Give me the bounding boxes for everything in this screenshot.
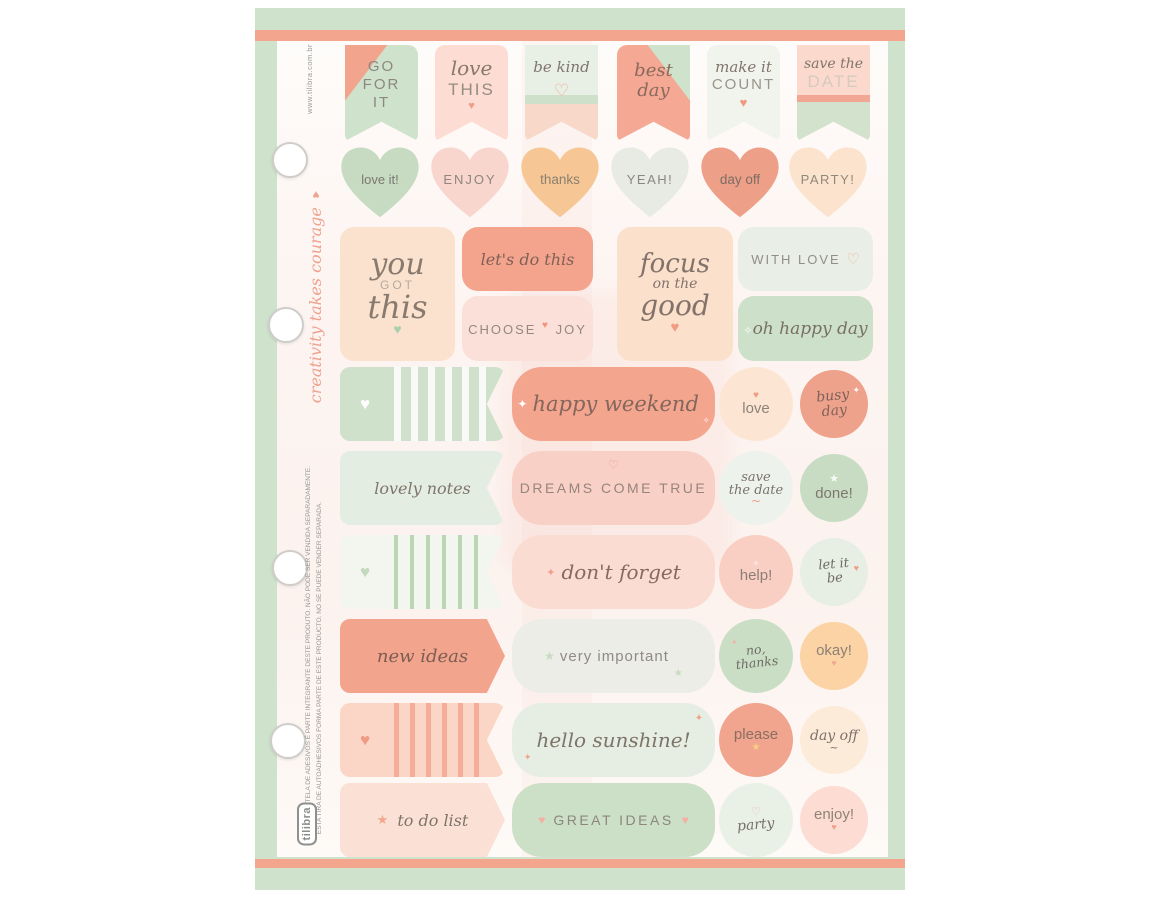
sticker-flag-make-it-count: make it COUNT ♥ <box>707 45 780 141</box>
stripe-pattern <box>394 367 489 441</box>
sticker-tag-striped-mint: ♥ <box>340 367 505 441</box>
sticker-circle-party: ♡ party <box>719 783 793 857</box>
vertical-legal-text: ESTA CARTELA DE ADESIVOS É PARTE INTEGRA… <box>303 466 325 818</box>
star-icon: ★ <box>544 649 555 663</box>
sticker-circle-busy-day: busy day ✦ <box>800 370 868 438</box>
sticker-circle-love: ♥ love <box>719 367 793 441</box>
sticker-circle-okay: okay! ♥ <box>800 622 868 690</box>
circle-label: enjoy! <box>814 807 854 823</box>
quote-script: focus <box>640 253 710 276</box>
punch-hole <box>272 142 308 178</box>
circle-label: party <box>737 817 776 835</box>
pill-label: hello sunshine! <box>536 728 690 752</box>
flag-divider-band <box>797 95 870 102</box>
heart-icon: ♥ <box>468 100 475 112</box>
sparkle-icon: ✦ <box>731 639 738 647</box>
sticker-heart-day-off: day off <box>698 145 782 221</box>
pill-label: don't forget <box>561 560 680 584</box>
flag-caps: THIS <box>448 80 495 100</box>
circle-label: day <box>818 402 852 420</box>
brand-logo-text: tilibra <box>297 802 317 845</box>
sticker-pill-very-important: ★ very important ★ <box>512 619 715 693</box>
flag-label: GOFORIT <box>363 58 401 112</box>
heart-label: PARTY! <box>786 172 870 187</box>
circle-label: done! <box>815 486 853 502</box>
swirl-icon: ~ <box>829 744 838 752</box>
heart-outline-icon: ♡ <box>846 251 859 268</box>
quote-script: let's do this <box>481 250 575 269</box>
sparkle-icon: ✦ <box>546 566 555 579</box>
heart-icon: ♥ <box>393 322 401 336</box>
sticker-circle-done: ★ done! <box>800 454 868 522</box>
heart-icon: ♥ <box>360 732 370 749</box>
top-coral-stripe <box>255 30 905 41</box>
quote-caps: CHOOSE <box>468 322 536 337</box>
sticker-circle-day-off: day off ~ <box>800 706 868 774</box>
sticker-quote-lets-do-this: let's do this <box>462 227 593 291</box>
flag-script: make it <box>715 58 772 76</box>
sticker-pill-dreams-come-true: ♡ DREAMS COME TRUE <box>512 451 715 525</box>
heart-icon: ♥ <box>542 320 550 331</box>
sparkle-icon: ✦ <box>852 386 860 395</box>
pill-label: GREAT IDEAS <box>553 812 673 828</box>
quote-script: you <box>370 252 424 278</box>
sticker-quote-with-love: WITH LOVE ♡ <box>738 227 873 291</box>
tag-label: lovely notes <box>374 479 471 498</box>
punch-hole <box>270 723 306 759</box>
sticker-circle-please: please ★ <box>719 703 793 777</box>
sticker-flag-go-for-it: GOFORIT <box>345 45 418 141</box>
sticker-circle-no-thanks: no, thanks ✦ <box>719 619 793 693</box>
stripe-pattern <box>394 535 489 609</box>
sticker-circle-let-it-be: let it be ♥ <box>800 538 868 606</box>
sticker-sheet: GOFORIT love THIS ♥ be kind ♡ best day <box>255 8 905 890</box>
sticker-tag-striped-peach: ♥ <box>340 703 505 777</box>
tagline-text: creativity takes courage <box>306 207 325 403</box>
heart-icon: ♥ <box>854 564 859 573</box>
sparkle-icon: ✦ <box>524 752 532 763</box>
sticker-circle-help: ✧ help! <box>719 535 793 609</box>
heart-label: day off <box>698 172 782 187</box>
flag-script: be kind <box>533 58 589 76</box>
heart-icon: ♥ <box>671 320 680 335</box>
heart-outline-icon: ♡ <box>512 458 715 472</box>
heart-outline-icon: ♡ <box>554 82 569 99</box>
circle-label: please <box>734 727 778 743</box>
sticker-heart-thanks: thanks <box>518 145 602 221</box>
heart-icon: ♥ <box>831 659 836 668</box>
sticker-circle-enjoy: enjoy! ♥ <box>800 786 868 854</box>
website-text: www.tilibra.com.br <box>305 44 314 114</box>
bottom-coral-stripe <box>255 859 905 868</box>
sticker-tag-striped-pale: ♥ <box>340 535 505 609</box>
sticker-heart-party: PARTY! <box>786 145 870 221</box>
heart-icon: ♥ <box>682 813 689 827</box>
flag-script: save the <box>804 56 863 72</box>
flag-script: love <box>451 56 493 80</box>
sticker-flag-save-the-date: save the DATE <box>797 45 870 141</box>
heart-icon: ♥ <box>360 396 370 413</box>
star-icon: ★ <box>674 668 683 679</box>
vertical-website-url: www.tilibra.com.br <box>305 44 314 144</box>
heart-label: YEAH! <box>608 172 692 187</box>
heart-label: love it! <box>338 172 422 187</box>
heart-label: thanks <box>518 172 602 187</box>
sticker-flag-best-day: best day <box>617 45 690 141</box>
stripe-pattern <box>394 703 489 777</box>
legal-line-es: ESTA TIRA DE AUTOADHESIVOS FORMA PARTE D… <box>314 466 325 834</box>
circle-label: help! <box>740 568 773 584</box>
pill-label: very important <box>560 648 669 665</box>
sticker-pill-happy-weekend: ✦ happy weekend ✧ <box>512 367 715 441</box>
star-icon: ★ <box>752 743 761 754</box>
tag-label: to do list <box>397 811 468 830</box>
punch-hole <box>268 307 304 343</box>
quote-caps: JOY <box>556 322 587 337</box>
quote-script: good <box>640 292 710 320</box>
quote-script: oh happy day <box>753 319 868 339</box>
sticker-flag-love-this: love THIS ♥ <box>435 45 508 141</box>
brand-logo: tilibra <box>297 802 317 850</box>
sticker-tag-new-ideas: new ideas <box>340 619 505 693</box>
sticker-pill-great-ideas: ♥ GREAT IDEAS ♥ <box>512 783 715 857</box>
sticker-quote-choose-joy: CHOOSE ♥ JOY <box>462 296 593 361</box>
sticker-quote-focus-on-the-good: focus on the good ♥ <box>617 227 733 361</box>
flag-caps: COUNT <box>712 76 775 93</box>
sticker-pill-dont-forget: ✦ don't forget <box>512 535 715 609</box>
flag-caps: DATE <box>807 72 859 92</box>
legal-line-pt: ESTA CARTELA DE ADESIVOS É PARTE INTEGRA… <box>303 466 314 834</box>
swirl-icon: ~ <box>751 498 761 505</box>
sticker-circle-save-the-date: save the date ~ <box>719 451 793 525</box>
star-icon: ★ <box>377 812 389 828</box>
pill-label: DREAMS COME TRUE <box>520 480 708 496</box>
sticker-flag-be-kind: be kind ♡ <box>525 45 598 141</box>
flag-script: best <box>634 61 673 81</box>
pill-label: happy weekend <box>532 392 698 416</box>
sticker-pill-hello-sunshine: ✦ hello sunshine! ✦ <box>512 703 715 777</box>
quote-script: this <box>367 292 427 322</box>
circle-label: thanks <box>735 654 779 672</box>
heart-icon: ♥ <box>360 564 370 581</box>
heart-icon: ♥ <box>831 823 836 832</box>
sticker-heart-enjoy: ENJOY <box>428 145 512 221</box>
sticker-tag-lovely-notes: lovely notes <box>340 451 505 525</box>
quote-caps: WITH LOVE <box>751 252 841 267</box>
heart-icon: ♥ <box>309 188 323 202</box>
sticker-quote-you-got-this: you GOT this ♥ <box>340 227 455 361</box>
circle-label: love <box>742 401 770 417</box>
circle-label: be <box>819 571 851 587</box>
flag-script: day <box>634 81 673 101</box>
product-photo-canvas: GOFORIT love THIS ♥ be kind ♡ best day <box>0 0 1160 898</box>
circle-label: okay! <box>816 643 852 659</box>
sparkle-icon: ✦ <box>517 397 527 411</box>
sparkle-icon: ✧ <box>703 416 710 425</box>
sticker-heart-love-it: love it! <box>338 145 422 221</box>
sparkle-icon: ✧ <box>743 325 752 337</box>
sparkle-icon: ✦ <box>695 713 703 724</box>
sticker-heart-yeah: YEAH! <box>608 145 692 221</box>
heart-label: ENJOY <box>428 172 512 187</box>
tag-label: new ideas <box>377 646 468 667</box>
heart-icon: ♥ <box>538 813 545 827</box>
heart-icon: ♥ <box>740 95 748 110</box>
vertical-tagline: creativity takes courage ♥ <box>306 188 325 408</box>
sticker-quote-oh-happy-day: ✧oh happy day <box>738 296 873 361</box>
sticker-tag-to-do-list: ★ to do list <box>340 783 505 857</box>
circle-label: save <box>729 471 783 485</box>
sticker-page: GOFORIT love THIS ♥ be kind ♡ best day <box>277 41 888 857</box>
